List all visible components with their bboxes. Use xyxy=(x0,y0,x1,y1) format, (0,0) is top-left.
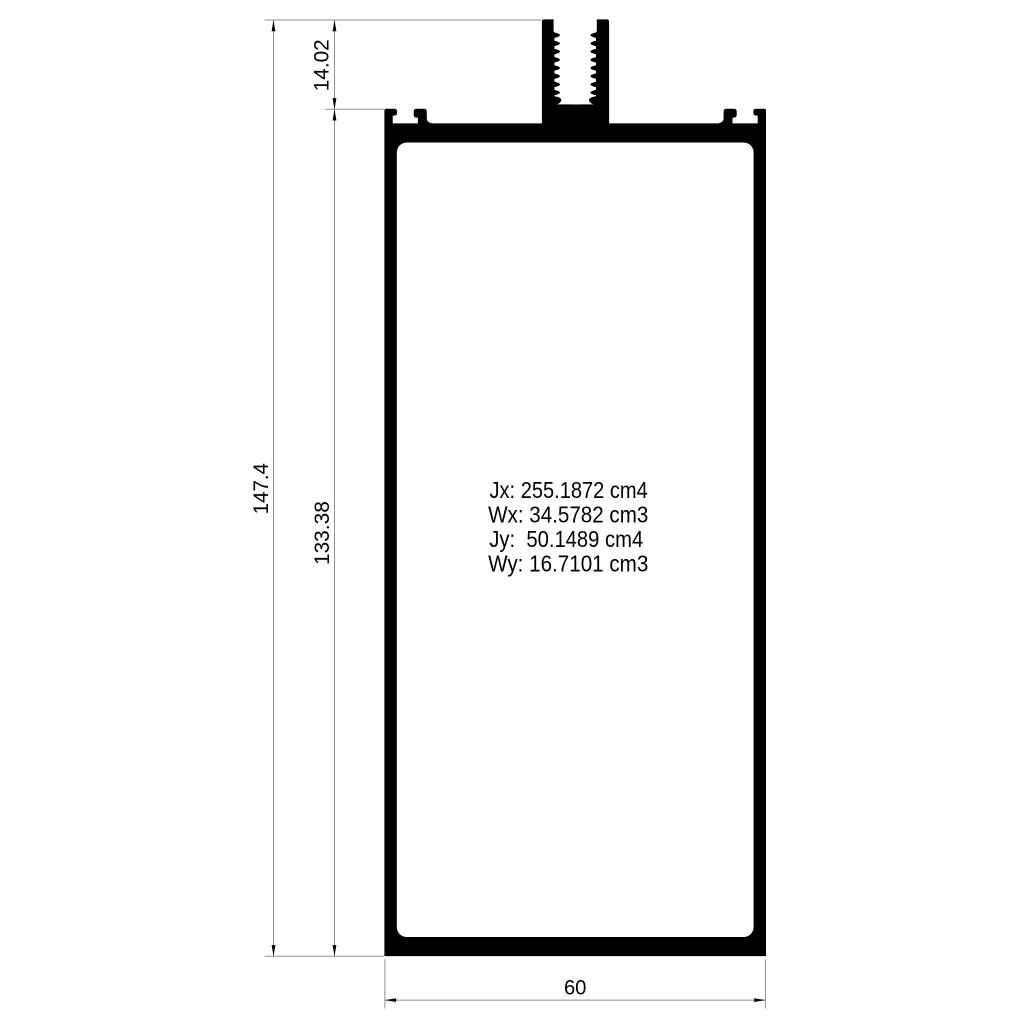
svg-text:Wx: 34.5782 cm3: Wx: 34.5782 cm3 xyxy=(488,502,648,528)
svg-text:Jy: 50.1489 cm4: Jy: 50.1489 cm4 xyxy=(489,526,643,552)
svg-text:14.02: 14.02 xyxy=(310,39,334,91)
svg-text:60: 60 xyxy=(564,976,587,1000)
svg-text:Wy: 16.7101 cm3: Wy: 16.7101 cm3 xyxy=(488,551,648,577)
svg-text:Jx: 255.1872 cm4: Jx: 255.1872 cm4 xyxy=(490,477,648,503)
svg-text:147.4: 147.4 xyxy=(249,463,273,514)
svg-text:133.38: 133.38 xyxy=(310,501,334,565)
